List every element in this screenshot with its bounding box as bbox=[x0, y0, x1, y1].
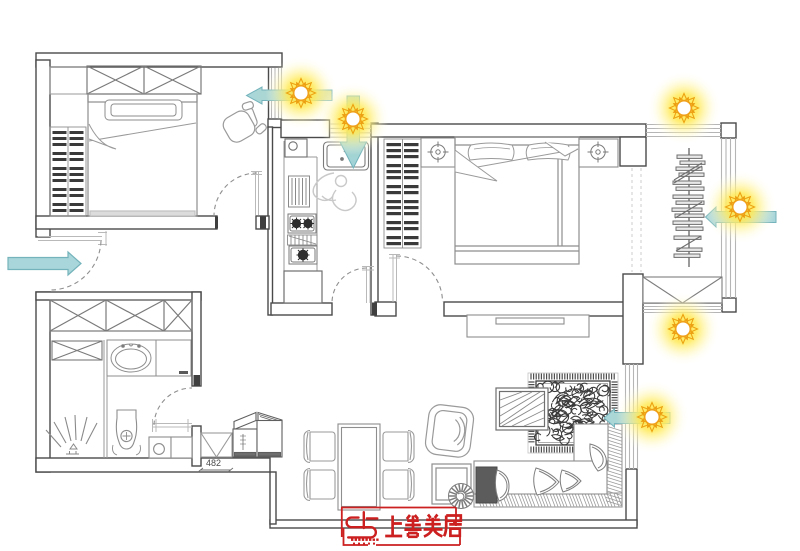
svg-text:482: 482 bbox=[206, 458, 221, 468]
